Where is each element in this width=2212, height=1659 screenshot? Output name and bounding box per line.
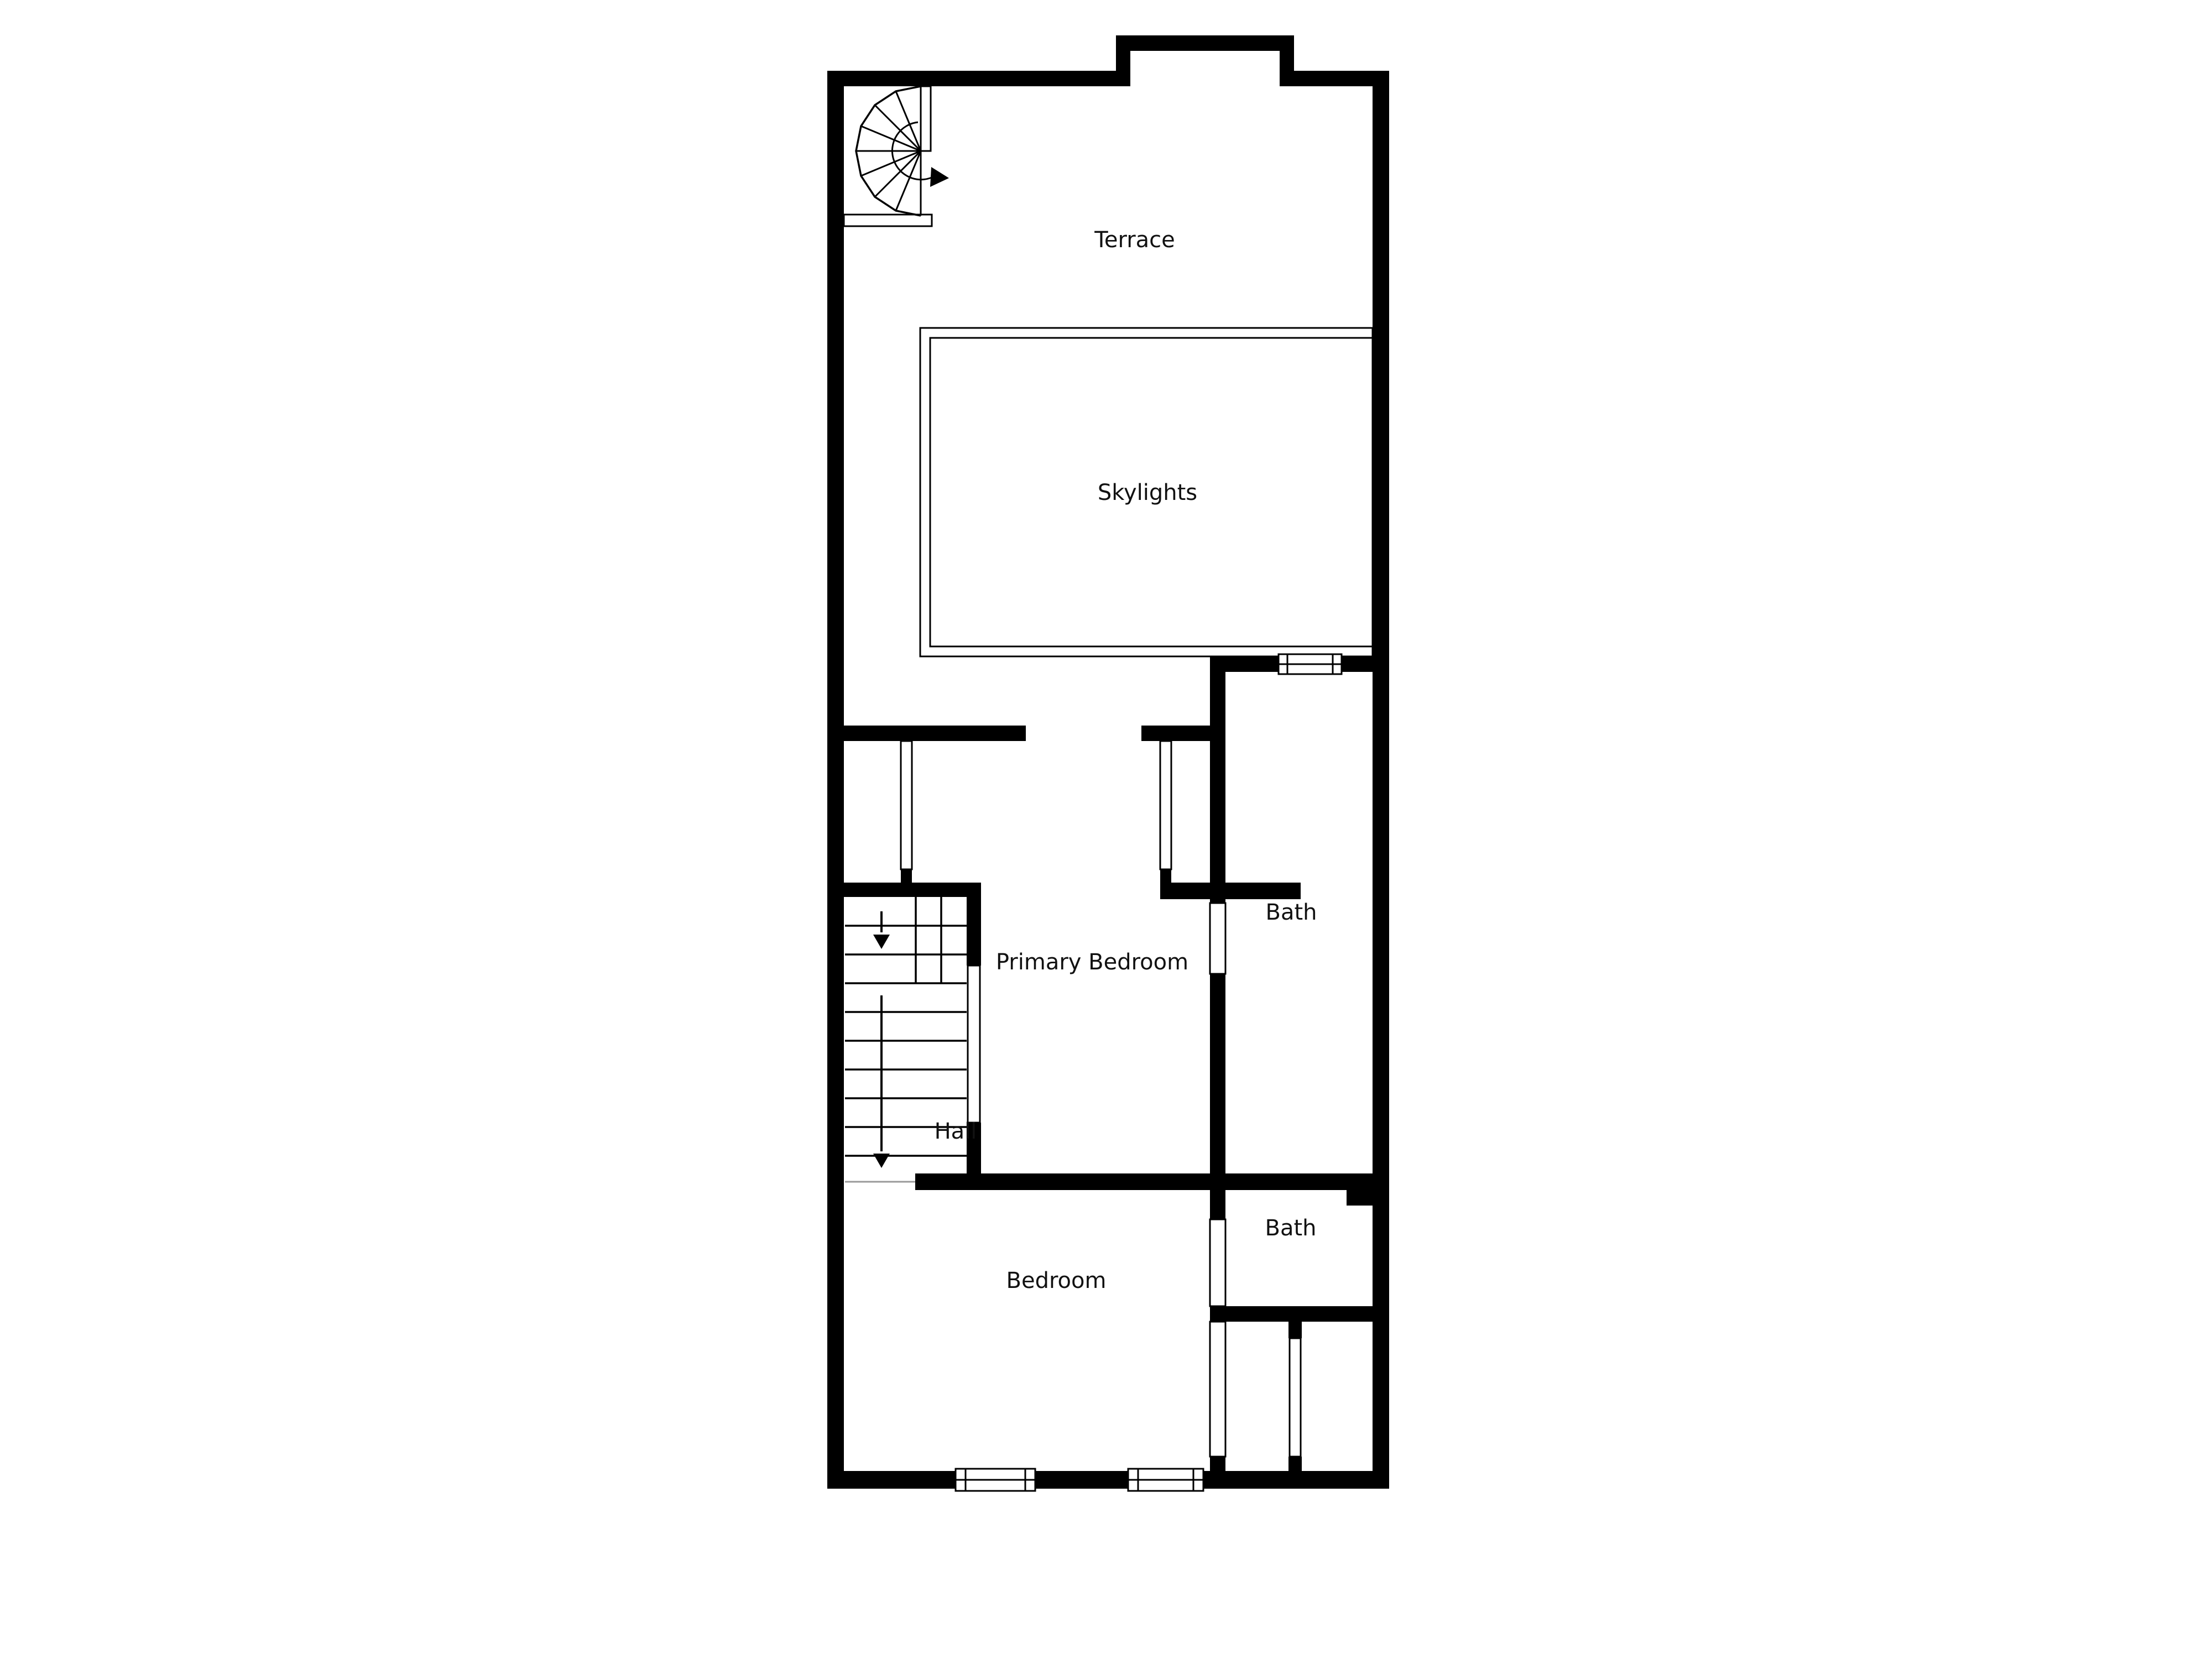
glass-strip-left-cap	[901, 869, 912, 883]
room-label-hall: Hall	[935, 1119, 977, 1144]
bath-upper-door-opening	[1210, 903, 1225, 974]
room-label-bedroom: Bedroom	[1006, 1268, 1107, 1293]
bedroom-top-wall	[915, 1173, 1389, 1190]
glass-strip-right-cap	[1160, 869, 1171, 883]
roof-bump-right-side	[1280, 51, 1294, 86]
closet-divider-bottom-cap	[1288, 1457, 1302, 1471]
exterior-top-wall-right	[1280, 71, 1389, 86]
bath-upper-window	[1279, 654, 1342, 674]
closet-opening	[1210, 1322, 1225, 1457]
closet-divider-glass	[1290, 1338, 1301, 1457]
exterior-right-wall	[1373, 71, 1389, 1489]
bedroom-top-wall-notch	[1347, 1190, 1373, 1206]
bath-lower-door-opening	[1210, 1219, 1225, 1306]
bath-lower-left-wall-cap	[1210, 1457, 1225, 1471]
hall-top-wall	[827, 883, 978, 897]
spiral-stair-entry-tread	[921, 86, 931, 151]
room-label-terrace: Terrace	[1094, 227, 1175, 253]
room-label-skylights: Skylights	[1098, 480, 1197, 505]
roof-bump-top	[1116, 35, 1294, 51]
bedroom-window-left	[956, 1469, 1035, 1491]
bath-lower-bottom-wall	[1210, 1306, 1373, 1322]
floor-plan-canvas: TerraceSkylightsBathPrimary BedroomHallB…	[0, 0, 2212, 1659]
terrace-bedroom-wall-right	[1141, 726, 1225, 741]
floor-plan-svg: TerraceSkylightsBathPrimary BedroomHallB…	[0, 0, 2212, 1659]
exterior-bottom-wall	[827, 1471, 1389, 1489]
closet-divider-top-cap	[1288, 1322, 1302, 1338]
room-label-bath-upper: Bath	[1266, 900, 1317, 925]
roof-bump-left-side	[1116, 51, 1130, 86]
exterior-left-wall	[827, 71, 844, 1489]
glass-partition-right	[1160, 741, 1171, 869]
terrace-bedroom-wall-left	[827, 726, 1026, 741]
room-label-bath-lower: Bath	[1265, 1215, 1317, 1241]
stairwell-glass-rail	[968, 966, 980, 1123]
room-label-primary-bedroom: Primary Bedroom	[996, 950, 1188, 975]
spiral-stair-landing	[844, 215, 932, 226]
bath-upper-left-wall-top	[1210, 656, 1225, 903]
bath-upper-left-wall-bot	[1210, 974, 1225, 1190]
exterior-top-wall-left	[827, 71, 1130, 86]
bedroom-divider-wall	[1160, 883, 1301, 899]
bath-lower-left-wall-top	[1210, 1190, 1225, 1219]
stairwell-wall-top	[967, 883, 981, 966]
glass-partition-left	[901, 741, 912, 869]
closet-window	[1128, 1469, 1203, 1491]
